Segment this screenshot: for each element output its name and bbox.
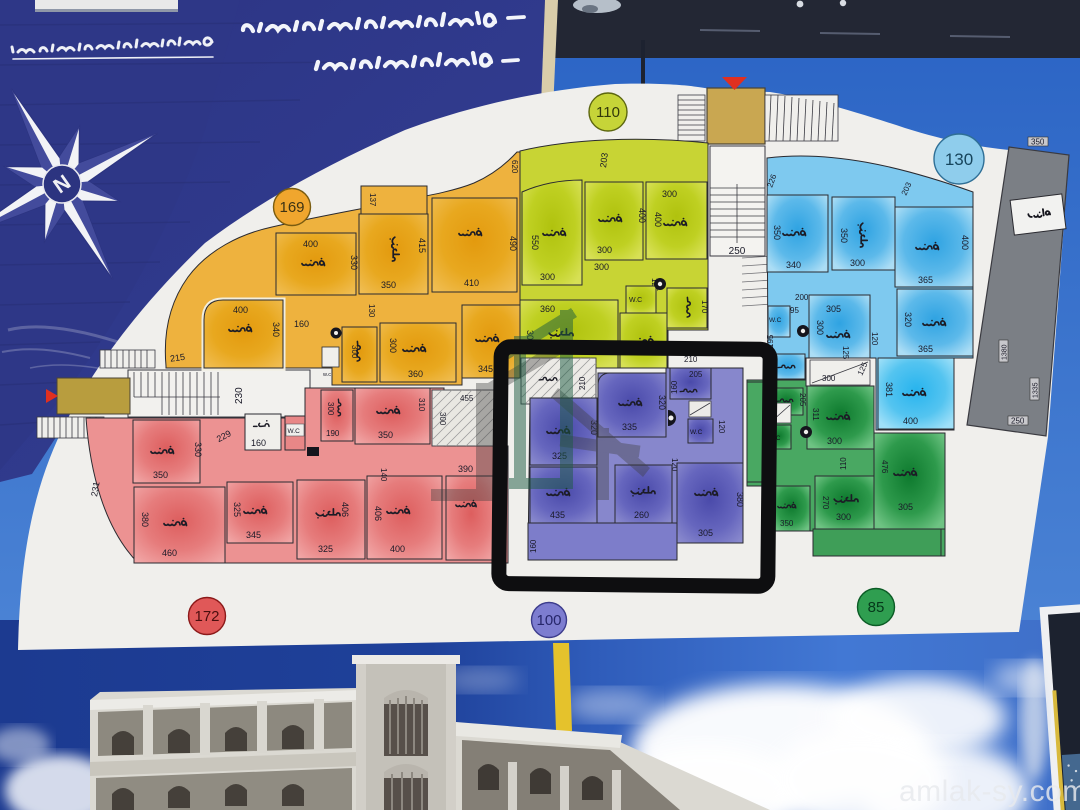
svg-text:400: 400 bbox=[303, 239, 318, 249]
svg-text:320: 320 bbox=[903, 312, 913, 327]
svg-text:300: 300 bbox=[438, 412, 447, 426]
svg-text:200: 200 bbox=[795, 293, 809, 302]
svg-text:305: 305 bbox=[898, 502, 913, 512]
svg-text:205: 205 bbox=[689, 370, 703, 379]
svg-text:406: 406 bbox=[340, 502, 350, 517]
svg-text:1335: 1335 bbox=[1033, 382, 1040, 398]
svg-text:137: 137 bbox=[368, 193, 377, 207]
svg-text:350: 350 bbox=[378, 430, 393, 440]
svg-text:169: 169 bbox=[279, 199, 304, 216]
svg-text:260: 260 bbox=[634, 510, 649, 520]
svg-text:300: 300 bbox=[594, 262, 609, 272]
svg-text:400: 400 bbox=[653, 212, 663, 227]
svg-text:130: 130 bbox=[367, 304, 376, 318]
svg-text:300: 300 bbox=[350, 345, 359, 359]
svg-text:172: 172 bbox=[194, 608, 219, 625]
svg-text:W.C: W.C bbox=[769, 317, 782, 324]
svg-text:550: 550 bbox=[530, 235, 540, 250]
svg-text:110: 110 bbox=[596, 104, 620, 121]
svg-text:120: 120 bbox=[717, 420, 726, 434]
svg-text:330: 330 bbox=[193, 442, 203, 457]
svg-text:125: 125 bbox=[841, 346, 850, 360]
svg-text:406: 406 bbox=[373, 506, 383, 521]
svg-text:160: 160 bbox=[529, 539, 538, 553]
svg-text:140: 140 bbox=[379, 468, 388, 482]
svg-text:325: 325 bbox=[318, 544, 333, 554]
svg-text:380: 380 bbox=[140, 512, 150, 527]
svg-text:305: 305 bbox=[826, 304, 841, 314]
svg-text:320: 320 bbox=[657, 395, 667, 410]
svg-text:360: 360 bbox=[540, 304, 555, 314]
svg-text:325: 325 bbox=[232, 502, 242, 517]
svg-text:w.c: w.c bbox=[322, 372, 331, 378]
svg-text:345: 345 bbox=[478, 364, 493, 374]
svg-text:400: 400 bbox=[960, 235, 970, 250]
svg-text:311: 311 bbox=[811, 408, 820, 421]
svg-text:170: 170 bbox=[700, 300, 709, 314]
svg-text:455: 455 bbox=[460, 394, 474, 403]
svg-text:305: 305 bbox=[698, 528, 713, 538]
svg-text:620: 620 bbox=[510, 160, 519, 174]
svg-text:W.C: W.C bbox=[629, 297, 642, 304]
svg-text:350: 350 bbox=[780, 519, 794, 528]
svg-text:476: 476 bbox=[880, 460, 889, 474]
svg-text:100: 100 bbox=[536, 612, 561, 629]
svg-text:365: 365 bbox=[918, 344, 933, 354]
svg-text:350: 350 bbox=[839, 228, 849, 243]
svg-text:345: 345 bbox=[246, 530, 261, 540]
svg-text:340: 340 bbox=[786, 260, 801, 270]
svg-text:400: 400 bbox=[233, 305, 248, 315]
svg-text:85: 85 bbox=[868, 599, 885, 616]
svg-text:350: 350 bbox=[1031, 138, 1045, 147]
svg-text:205: 205 bbox=[798, 393, 807, 407]
svg-text:335: 335 bbox=[622, 422, 637, 432]
svg-text:210: 210 bbox=[684, 355, 698, 364]
svg-text:130: 130 bbox=[945, 150, 973, 169]
svg-text:W.C: W.C bbox=[288, 428, 301, 435]
svg-text:435: 435 bbox=[550, 510, 565, 520]
svg-text:190: 190 bbox=[326, 429, 340, 438]
svg-text:160: 160 bbox=[670, 380, 679, 394]
svg-text:250: 250 bbox=[729, 246, 746, 257]
svg-text:300: 300 bbox=[836, 512, 851, 522]
svg-text:390: 390 bbox=[458, 464, 473, 474]
svg-text:365: 365 bbox=[918, 275, 933, 285]
svg-text:360: 360 bbox=[408, 369, 423, 379]
svg-text:490: 490 bbox=[508, 236, 518, 251]
svg-text:300: 300 bbox=[388, 338, 398, 353]
svg-text:250: 250 bbox=[1011, 417, 1025, 426]
svg-text:340: 340 bbox=[271, 322, 281, 337]
svg-text:1380: 1380 bbox=[1002, 344, 1009, 360]
svg-text:380: 380 bbox=[735, 492, 745, 507]
svg-text:300: 300 bbox=[326, 402, 335, 416]
svg-text:350: 350 bbox=[153, 470, 168, 480]
svg-text:300: 300 bbox=[540, 272, 555, 282]
svg-text:amlak-sy.com: amlak-sy.com bbox=[899, 775, 1080, 808]
svg-text:95: 95 bbox=[790, 306, 799, 315]
svg-text:410: 410 bbox=[464, 278, 479, 288]
svg-text:400: 400 bbox=[903, 416, 918, 426]
svg-text:300: 300 bbox=[827, 436, 842, 446]
svg-text:350: 350 bbox=[381, 280, 396, 290]
svg-text:300: 300 bbox=[815, 320, 825, 335]
svg-text:160: 160 bbox=[294, 319, 309, 329]
svg-text:230: 230 bbox=[234, 387, 245, 404]
svg-text:381: 381 bbox=[884, 382, 894, 397]
svg-text:300: 300 bbox=[597, 245, 612, 255]
svg-text:270: 270 bbox=[821, 496, 830, 510]
svg-text:415: 415 bbox=[417, 238, 427, 253]
svg-text:330: 330 bbox=[349, 255, 359, 270]
svg-text:460: 460 bbox=[162, 548, 177, 558]
svg-text:300: 300 bbox=[850, 258, 865, 268]
svg-text:300: 300 bbox=[662, 189, 677, 199]
svg-text:110: 110 bbox=[839, 457, 848, 470]
svg-text:400: 400 bbox=[390, 544, 405, 554]
svg-text:160: 160 bbox=[251, 438, 266, 448]
svg-text:W.C: W.C bbox=[690, 429, 703, 436]
svg-text:203: 203 bbox=[598, 152, 610, 168]
svg-text:215: 215 bbox=[169, 352, 185, 364]
svg-text:300: 300 bbox=[822, 374, 836, 383]
svg-text:120: 120 bbox=[870, 332, 879, 346]
svg-text:350: 350 bbox=[772, 225, 782, 240]
svg-text:310: 310 bbox=[417, 398, 426, 412]
svg-text:210: 210 bbox=[578, 376, 587, 390]
